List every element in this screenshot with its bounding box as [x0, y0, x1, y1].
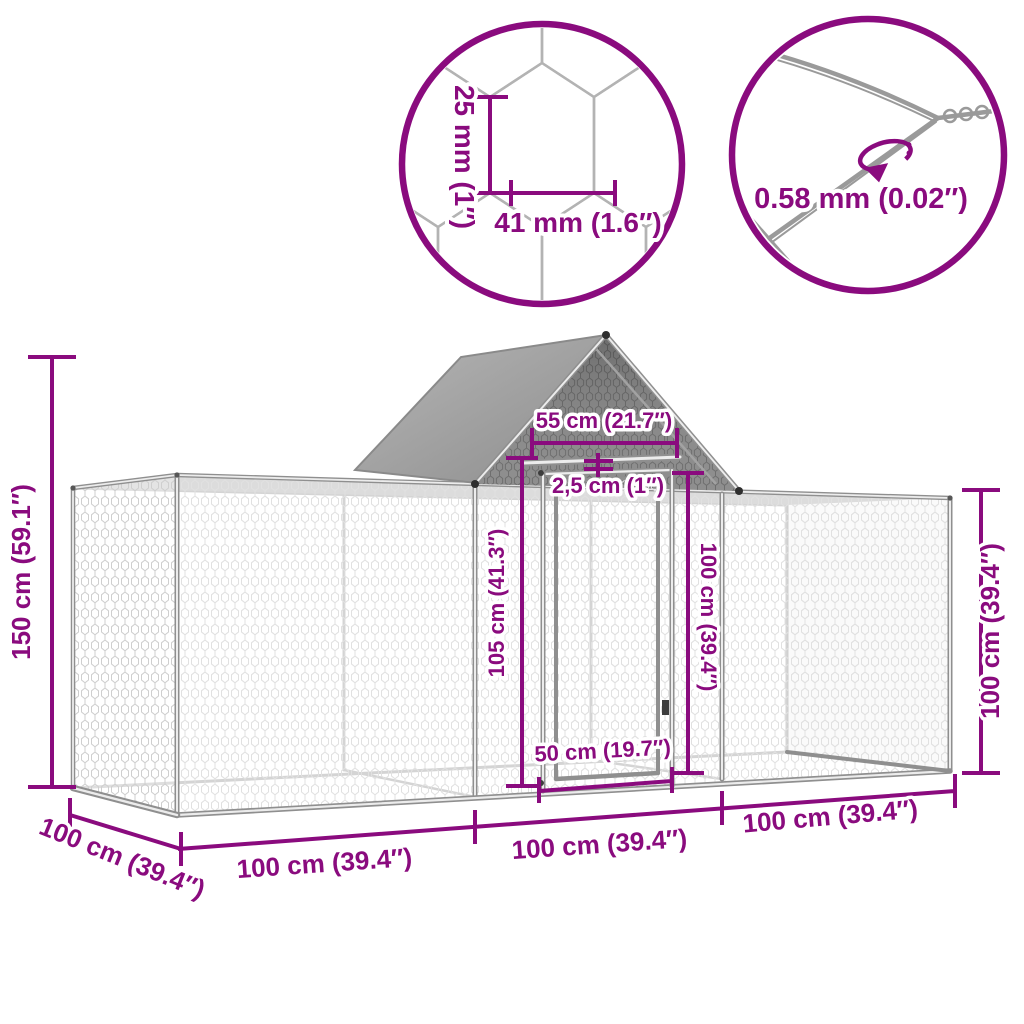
left-side-mesh [73, 475, 177, 815]
door-frame-height-label: 105 cm (41.3″) [484, 529, 509, 678]
left-eave-knob [471, 480, 479, 488]
section3-width-label: 100 cm (39.4″) [741, 793, 919, 838]
mesh-detail-circle: 25 mm (1″) 41 mm (1.6″) [334, 0, 750, 357]
total-height-label: 150 cm (59.1″) [6, 484, 36, 660]
roof-width-label: 55 cm (21.7″) [536, 408, 673, 433]
wire-detail-circle: 0.58 mm (0.02″) [731, 19, 1004, 301]
door-latch [662, 700, 669, 715]
diagram-canvas: 150 cm (59.1″) 55 cm (21.7″) 2,5 cm (1″)… [0, 0, 1024, 1024]
wire-circle-outline [732, 19, 1004, 291]
section1-width-label: 100 cm (39.4″) [236, 842, 413, 884]
mesh-cell-width-label: 41 mm (1.6″) [494, 207, 661, 238]
wall-height-label: 100 cm (39.4″) [975, 543, 1005, 719]
mesh-cell-height-label: 25 mm (1″) [449, 85, 480, 229]
door-hinge-top [538, 470, 544, 476]
dimension-total-height: 150 cm (59.1″) [6, 357, 76, 787]
chicken-coop-dimension-diagram: 150 cm (59.1″) 55 cm (21.7″) 2,5 cm (1″)… [0, 0, 1024, 1024]
coop-structure-drawing [70, 331, 952, 815]
depth-label: 100 cm (39.4″) [35, 811, 209, 905]
dimension-wall-height: 100 cm (39.4″) [962, 490, 1005, 773]
wire-diameter-label: 0.58 mm (0.02″) [754, 183, 968, 215]
door-mesh [556, 477, 658, 779]
right-eave-knob [735, 487, 743, 495]
post-knob [947, 495, 952, 500]
section2-width-label: 100 cm (39.4″) [511, 823, 688, 865]
tube-thickness-label: 2,5 cm (1″) [552, 473, 664, 498]
post-knob [70, 485, 75, 490]
door-height-label: 100 cm (39.4″) [696, 543, 721, 692]
post-knob [174, 472, 179, 477]
ridge-knob [602, 331, 610, 339]
